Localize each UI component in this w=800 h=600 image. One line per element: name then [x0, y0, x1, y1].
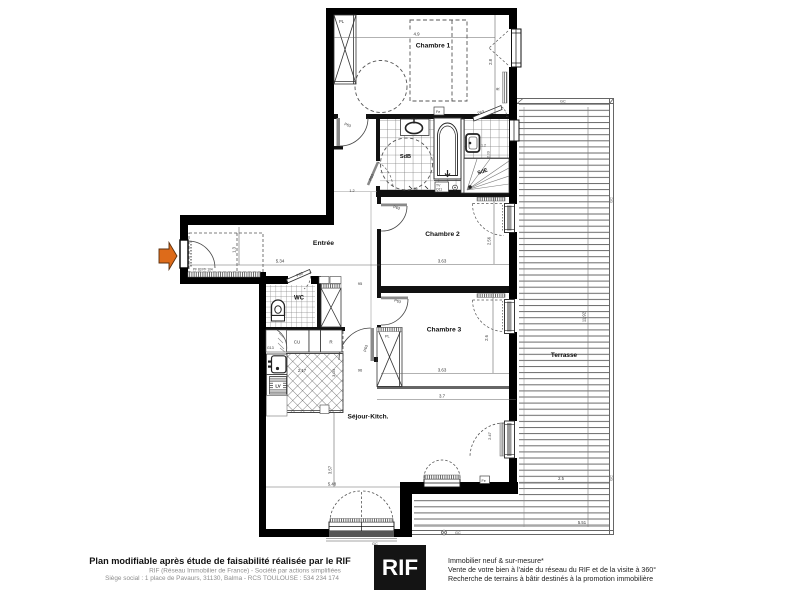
- svg-text:2.8: 2.8: [488, 58, 493, 64]
- svg-text:PL: PL: [385, 335, 390, 339]
- svg-text:2.56: 2.56: [487, 236, 492, 245]
- svg-text:PF 83 PF 104: PF 83 PF 104: [193, 268, 213, 272]
- svg-text:Plan modifiable après étude de: Plan modifiable après étude de faisabili…: [89, 556, 351, 566]
- svg-text:CU: CU: [294, 340, 301, 345]
- svg-text:GC: GC: [610, 197, 614, 203]
- svg-text:4.9: 4.9: [413, 32, 420, 37]
- svg-text:Q11: Q11: [436, 188, 442, 192]
- svg-text:PL: PL: [339, 19, 345, 24]
- svg-text:96: 96: [358, 368, 363, 373]
- svg-text:Chambre 3: Chambre 3: [427, 327, 462, 334]
- svg-text:5.48: 5.48: [328, 482, 337, 487]
- svg-text:1.2: 1.2: [349, 189, 354, 193]
- svg-text:1.3: 1.3: [232, 246, 237, 252]
- svg-text:Immobilier neuf & sur-mesure*: Immobilier neuf & sur-mesure*: [448, 557, 544, 565]
- svg-text:Chambre 2: Chambre 2: [425, 231, 460, 238]
- svg-text:5.34: 5.34: [276, 259, 285, 264]
- svg-text:3.57: 3.57: [328, 465, 333, 474]
- svg-text:Fe: Fe: [482, 479, 486, 483]
- svg-text:GC: GC: [455, 531, 461, 535]
- svg-text:WC: WC: [294, 296, 305, 302]
- svg-text:1.2: 1.2: [481, 144, 486, 148]
- svg-text:G13: G13: [267, 346, 274, 350]
- svg-text:Terrasse: Terrasse: [551, 352, 578, 359]
- svg-text:Recherche de terrains à bâtir: Recherche de terrains à bâtir destinés à…: [448, 575, 653, 583]
- svg-text:11.92: 11.92: [582, 311, 587, 322]
- svg-text:RIF: RIF: [382, 555, 418, 580]
- svg-text:3.63: 3.63: [438, 368, 447, 373]
- svg-text:3.63: 3.63: [438, 259, 447, 264]
- svg-text:RIF (Réseau Immobilier de Fran: RIF (Réseau Immobilier de France) - Soci…: [149, 568, 341, 575]
- svg-text:2.47: 2.47: [487, 431, 492, 440]
- svg-text:GC: GC: [610, 475, 614, 481]
- svg-text:5.51: 5.51: [578, 520, 587, 525]
- svg-text:LV: LV: [275, 384, 280, 389]
- svg-text:SdB: SdB: [400, 154, 411, 160]
- svg-text:Chambre 1: Chambre 1: [416, 43, 451, 50]
- svg-text:Siège social : 1 place de Pava: Siège social : 1 place de Pavaurs, 31130…: [105, 575, 339, 582]
- svg-text:3.7: 3.7: [439, 394, 446, 399]
- svg-text:Vente de votre bien à l'aide d: Vente de votre bien à l'aide du réseau d…: [448, 566, 656, 574]
- svg-text:Séjour·Kitch.: Séjour·Kitch.: [347, 414, 388, 421]
- svg-text:2.5: 2.5: [558, 476, 564, 481]
- svg-text:GC: GC: [560, 100, 566, 104]
- svg-text:2.6: 2.6: [484, 334, 489, 340]
- svg-text:95: 95: [358, 281, 363, 286]
- svg-text:Fe: Fe: [436, 110, 440, 114]
- svg-text:Entrée: Entrée: [313, 240, 334, 247]
- svg-text:3.04: 3.04: [331, 368, 336, 377]
- svg-text:2.17: 2.17: [298, 368, 307, 373]
- svg-text:2.03: 2.03: [487, 151, 491, 158]
- svg-text:R: R: [496, 87, 501, 90]
